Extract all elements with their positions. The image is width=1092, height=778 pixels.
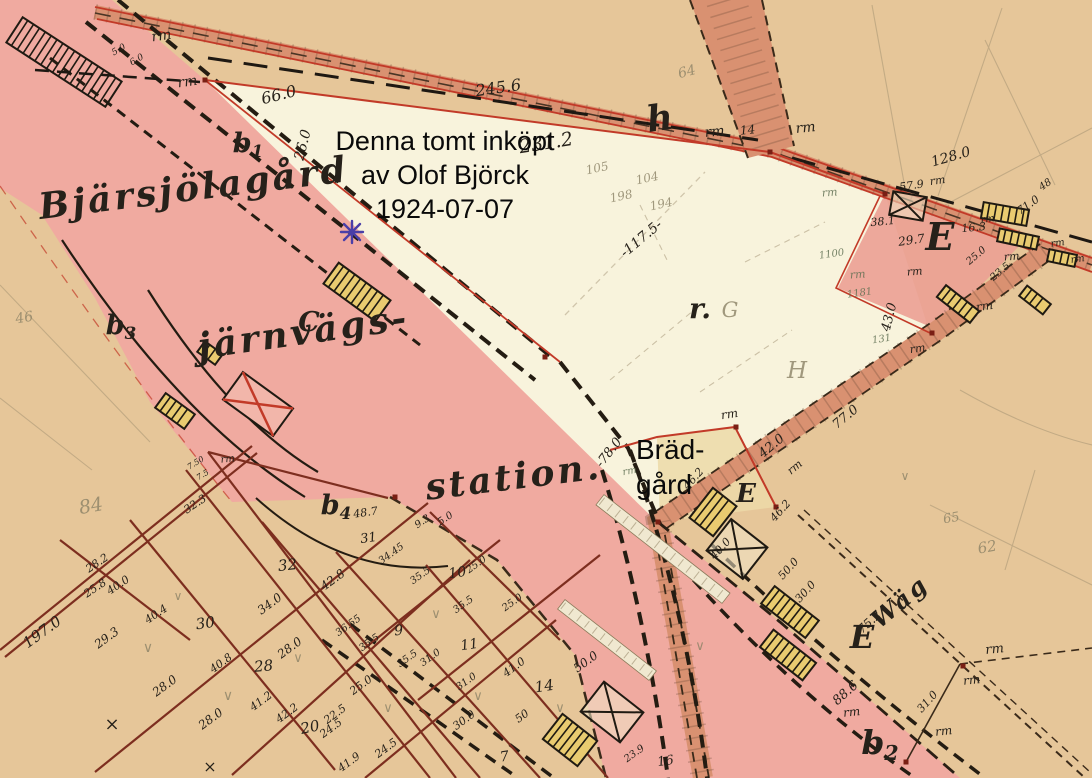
map-label: ∨ <box>473 689 483 704</box>
map-label: rm <box>909 341 926 356</box>
boundary-marker <box>904 760 909 765</box>
map-canvas: rm5.06.0rm66.026.0245.6231.2rm14rm128.0-… <box>0 0 1092 778</box>
map-label: E <box>735 479 757 509</box>
purchase-annotation-line2: av Olof Björck <box>292 158 598 192</box>
map-label: rm <box>985 641 1005 658</box>
map-label: ∨ <box>293 651 303 666</box>
map-label: × <box>104 714 119 735</box>
map-label: 30 <box>195 613 217 634</box>
boundary-marker <box>734 425 739 430</box>
map-label: rm <box>849 267 866 281</box>
bradgard-annotation: Bräd- gård <box>636 432 704 502</box>
boundary-marker <box>768 150 773 155</box>
map-label: × <box>203 757 216 776</box>
map-label: ∨ <box>383 701 393 716</box>
map-label: rm <box>176 73 198 92</box>
map-label: 65 <box>942 510 961 528</box>
map-label: ∨ <box>901 469 910 483</box>
building-crossed-black <box>889 191 927 221</box>
map-label: ∨ <box>143 640 153 656</box>
boundary-marker <box>543 355 548 360</box>
map-label: rm <box>704 123 726 141</box>
map-label: 46 <box>13 309 34 328</box>
map-label: ∨ <box>223 688 233 704</box>
map-label: r. <box>689 292 711 325</box>
bradgard-annotation-line2: gård <box>636 467 704 502</box>
map-label: rm <box>1050 237 1066 250</box>
purchase-annotation-line1: Denna tomt inköpt <box>292 124 598 158</box>
map-label: rm <box>980 213 996 226</box>
map-label: rm <box>929 173 946 188</box>
map-label: 28 <box>252 656 274 676</box>
boundary-marker <box>883 192 888 197</box>
map-label: ∨ <box>695 639 705 654</box>
boundary-marker <box>656 520 661 525</box>
map-label: h <box>644 95 679 141</box>
map-label: rm <box>906 264 923 278</box>
map-label: 32 <box>277 555 298 575</box>
map-label: rm <box>842 704 860 720</box>
map-label: ∨ <box>555 701 565 716</box>
purchase-annotation-line3: 1924-07-07 <box>292 192 598 226</box>
map-label: 84 <box>77 493 105 519</box>
map-label: rm <box>934 723 952 739</box>
map-label: 16 <box>656 753 674 770</box>
map-label: rm <box>1070 253 1086 266</box>
map-label: G <box>722 298 739 322</box>
bradgard-annotation-line1: Bräd- <box>636 432 704 467</box>
map-label: rm <box>720 406 739 422</box>
map-label: rm <box>975 298 994 314</box>
boundary-marker <box>930 331 935 336</box>
map-label: ∨ <box>431 607 441 622</box>
map-label: rm <box>220 453 235 465</box>
boundary-marker <box>961 664 966 669</box>
historical-cadastral-map: rm5.06.0rm66.026.0245.6231.2rm14rm128.0-… <box>0 0 1092 778</box>
map-label: 14 <box>739 122 756 138</box>
map-label: ∨ <box>174 589 183 603</box>
map-label: 38.1 <box>870 214 896 229</box>
map-label: 62 <box>976 537 998 558</box>
map-label: 31 <box>359 530 377 547</box>
map-label: rm <box>795 119 817 137</box>
map-label: H <box>786 358 808 384</box>
map-label: rm <box>821 185 838 199</box>
map-label: rm <box>962 672 980 688</box>
map-label: rm <box>150 27 172 46</box>
map-label: 11 <box>460 636 480 654</box>
map-label: E <box>925 214 956 259</box>
map-label: 9 <box>394 623 404 640</box>
purchase-annotation: Denna tomt inköpt av Olof Björck 1924-07… <box>292 124 598 226</box>
map-label: E <box>849 618 875 656</box>
boundary-marker <box>203 78 208 83</box>
boundary-marker <box>393 495 398 500</box>
map-label: 14 <box>534 676 555 696</box>
